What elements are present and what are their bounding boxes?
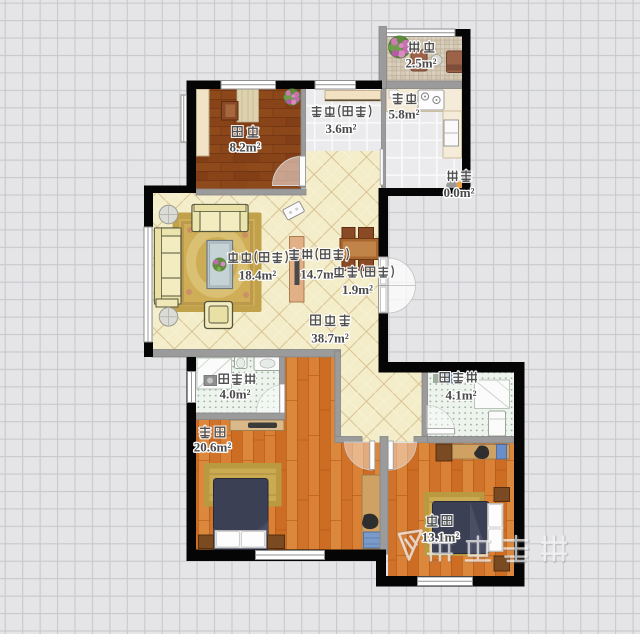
- svg-text:4.1m²: 4.1m²: [446, 388, 477, 403]
- svg-text:38.7m²: 38.7m²: [311, 331, 349, 346]
- svg-text:5.8m²: 5.8m²: [389, 107, 420, 122]
- svg-text:4.0m²: 4.0m²: [220, 387, 251, 402]
- svg-text:1.9m²: 1.9m²: [342, 282, 373, 297]
- svg-text:20.6m²: 20.6m²: [194, 440, 232, 455]
- svg-text:3.6m²: 3.6m²: [326, 121, 357, 136]
- svg-text:2.5m²: 2.5m²: [406, 56, 437, 71]
- svg-text:14.7m²: 14.7m²: [300, 267, 338, 282]
- svg-text:0.0m²: 0.0m²: [444, 185, 475, 200]
- svg-text:8.2m²: 8.2m²: [230, 140, 261, 155]
- svg-text:13.1m²: 13.1m²: [422, 530, 460, 545]
- svg-text:18.4m²: 18.4m²: [239, 268, 277, 283]
